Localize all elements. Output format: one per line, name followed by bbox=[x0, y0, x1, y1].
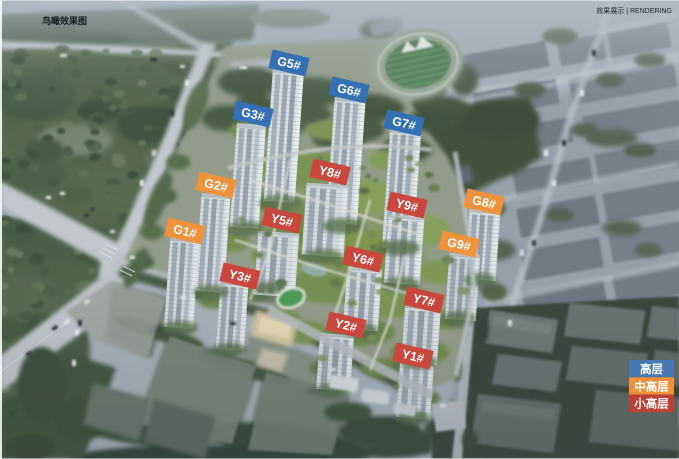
svg-text:效果展示 | RENDERING: 效果展示 | RENDERING bbox=[596, 6, 672, 15]
svg-text:高层: 高层 bbox=[640, 362, 663, 376]
svg-text:中高层: 中高层 bbox=[634, 379, 669, 393]
svg-text:小高层: 小高层 bbox=[633, 397, 669, 411]
svg-text:鸟瞰效果图: 鸟瞰效果图 bbox=[42, 15, 87, 26]
